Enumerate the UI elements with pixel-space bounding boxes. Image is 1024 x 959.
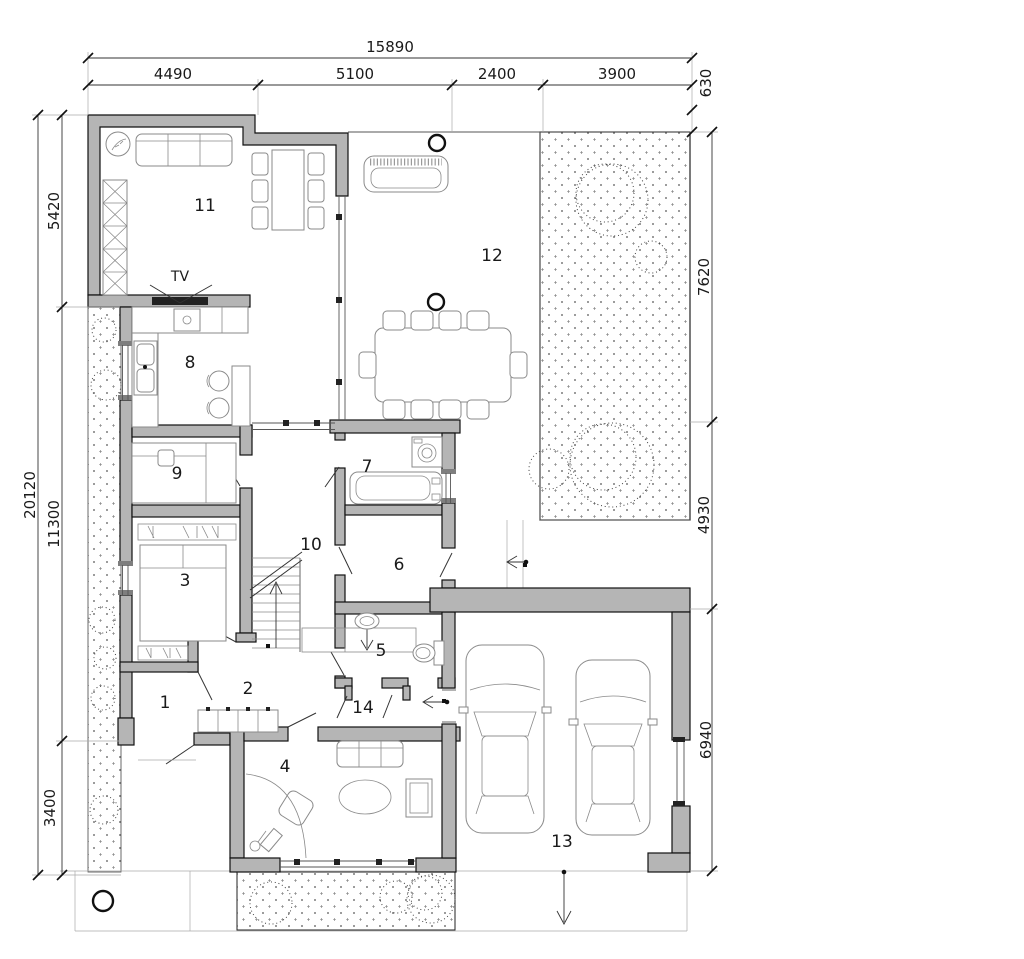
rug	[339, 780, 391, 814]
bar-stool	[209, 371, 229, 391]
room-label-12: 12	[481, 246, 503, 266]
plant-table	[106, 132, 130, 156]
breakfast-bar	[232, 366, 250, 426]
washbasin	[355, 613, 379, 629]
dining-table	[252, 150, 324, 230]
dim-left-seg-3: 3400	[41, 789, 59, 827]
room-label-5: 5	[376, 641, 387, 661]
dim-left-seg-2: 11300	[45, 500, 63, 548]
door-room4	[288, 713, 316, 727]
bedroom9-furniture	[132, 443, 236, 503]
hall-bench	[198, 707, 278, 732]
left-garden-strip	[88, 305, 121, 872]
sofa	[136, 134, 232, 166]
dim-right-seg-1: 7620	[695, 258, 713, 296]
dim-top-offset: 630	[697, 69, 715, 98]
terrace-furniture	[359, 135, 527, 419]
living-room-furniture	[103, 132, 324, 305]
armchair	[277, 789, 316, 828]
bedroom3-furniture	[138, 524, 236, 660]
room-label-2: 2	[243, 679, 254, 699]
door-room6	[339, 547, 352, 574]
room-label-14: 14	[352, 698, 374, 718]
floor-plan-drawing: 15890 4490 5100 2400 3900 630 20120 5420…	[0, 0, 1024, 959]
car-sedan	[569, 660, 657, 835]
bed	[132, 443, 236, 503]
wc-furniture	[355, 613, 444, 665]
dim-left-total: 20120	[21, 471, 39, 519]
oven	[174, 309, 200, 331]
washing-machine	[412, 437, 442, 467]
door-room14-right	[383, 695, 392, 718]
door-side-entrance	[440, 553, 452, 577]
dim-top-total: 15890	[366, 38, 414, 56]
dim-top-seg-1: 4490	[154, 65, 192, 83]
bar-stool	[209, 398, 229, 418]
keyboard	[260, 828, 282, 851]
room-label-10: 10	[300, 535, 322, 555]
room4-furniture	[246, 741, 432, 858]
driveway-arrow	[557, 870, 571, 924]
dim-top-seg-2: 5100	[336, 65, 374, 83]
dim-top-seg-3: 2400	[478, 65, 516, 83]
room-label-4: 4	[280, 757, 291, 777]
garage-top-wall	[430, 588, 690, 612]
room-label-7: 7	[362, 457, 373, 477]
sofa-small	[337, 741, 403, 767]
floor-plan-page: 15890 4490 5100 2400 3900 630 20120 5420…	[0, 0, 1024, 959]
garage-cars	[459, 645, 657, 835]
room-label-3: 3	[180, 571, 191, 591]
right-garden-area	[540, 132, 690, 520]
shelving-unit	[103, 180, 127, 295]
entry-door	[166, 745, 194, 764]
room-label-9: 9	[172, 464, 183, 484]
room-label-1: 1	[160, 693, 171, 713]
door-room1	[198, 672, 212, 700]
dim-right-seg-3: 6940	[697, 721, 715, 759]
tv-label: TV	[170, 269, 190, 285]
car-suv	[459, 645, 551, 833]
column	[428, 294, 444, 310]
kitchen-sink	[134, 341, 157, 395]
door-room14-left	[337, 696, 347, 718]
dim-left-seg-1: 5420	[45, 192, 63, 230]
room-label-8: 8	[185, 353, 196, 373]
outdoor-dining-table	[359, 311, 527, 419]
room-label-13: 13	[551, 832, 573, 852]
door-room5	[331, 652, 344, 675]
room-label-11: 11	[194, 196, 216, 216]
site-column-marker	[93, 891, 113, 911]
desk-lamp	[250, 841, 260, 851]
dim-right-seg-2: 4930	[695, 496, 713, 534]
room-label-6: 6	[394, 555, 405, 575]
column	[429, 135, 445, 151]
dim-top-seg-4: 3900	[598, 65, 636, 83]
